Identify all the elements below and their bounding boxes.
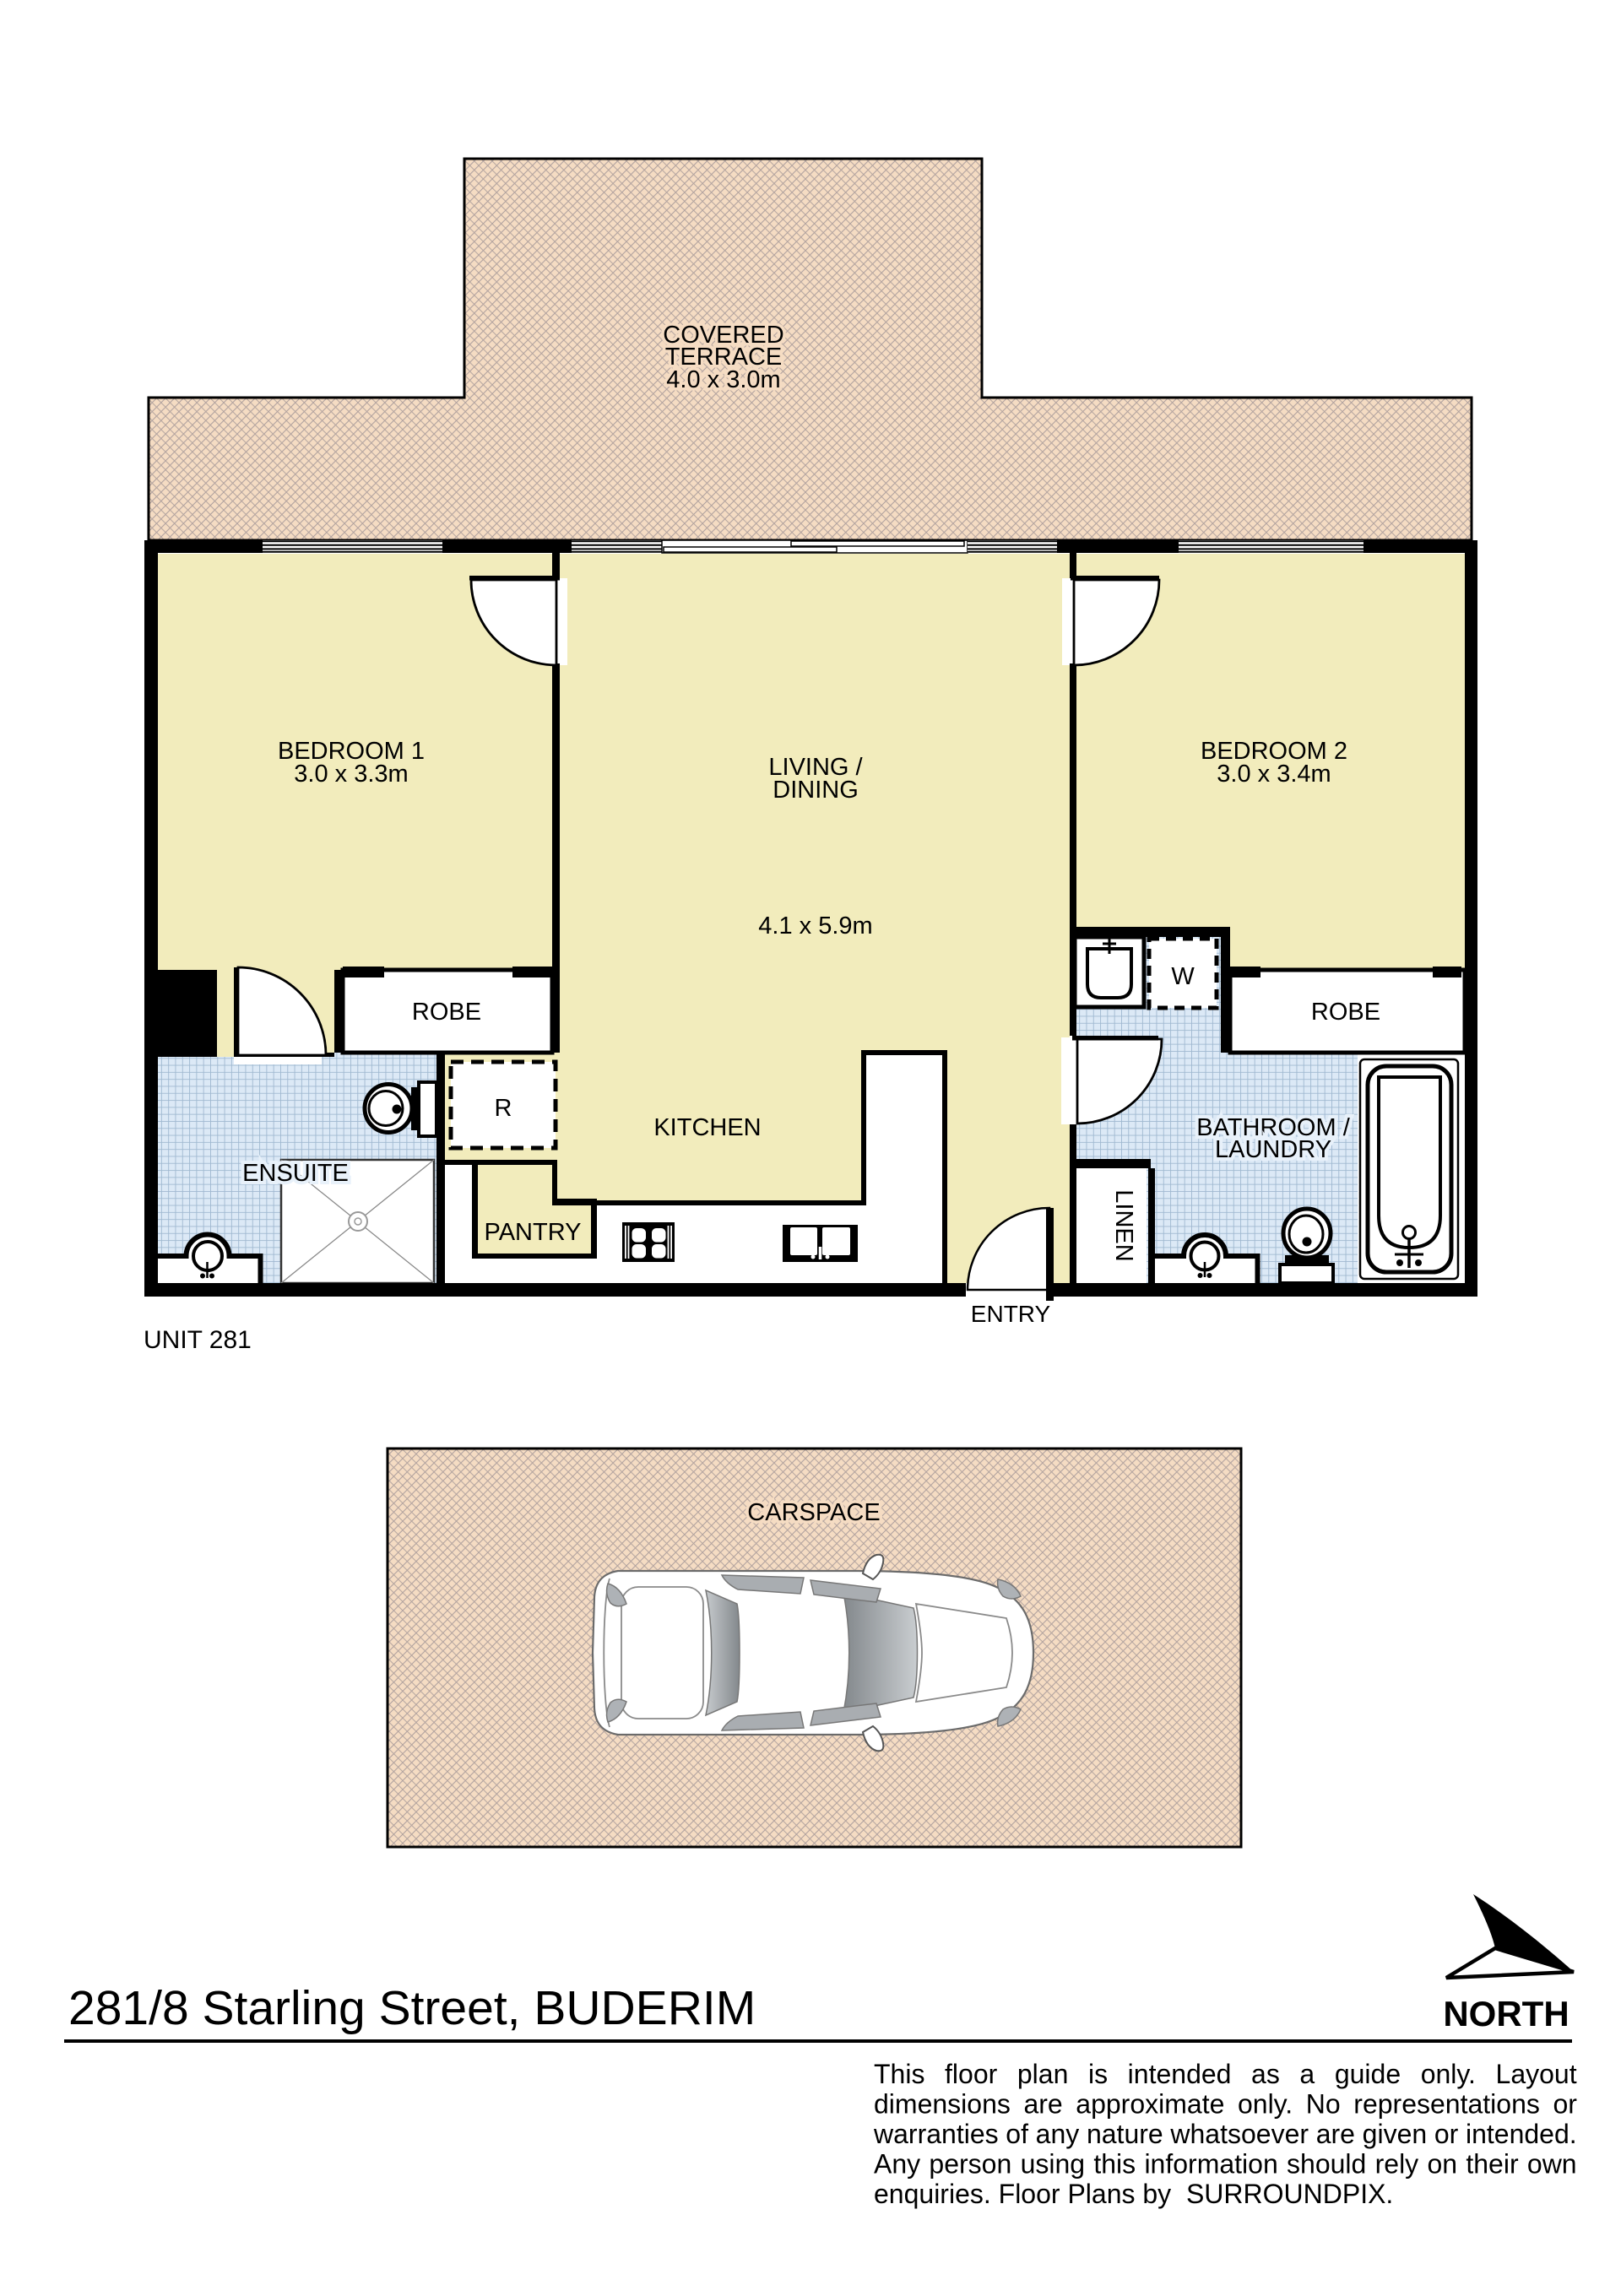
svg-text:ROBE: ROBE — [1311, 999, 1380, 1026]
svg-text:warranties of any nature whats: warranties of any nature whatsoever are … — [873, 2119, 1577, 2149]
svg-text:enquiries. Floor Plans by SUR: enquiries. Floor Plans by SURROUNDPIX. — [874, 2179, 1393, 2209]
svg-text:3.0 x 3.4m: 3.0 x 3.4m — [1217, 761, 1331, 788]
svg-text:UNIT 281: UNIT 281 — [144, 1326, 252, 1354]
svg-text:4.0 x 3.0m: 4.0 x 3.0m — [666, 366, 780, 393]
svg-text:KITCHEN: KITCHEN — [653, 1114, 761, 1141]
svg-text:ENSUITE: ENSUITE — [242, 1160, 349, 1187]
svg-text:LINEN: LINEN — [1110, 1189, 1137, 1261]
svg-text:LAUNDRY: LAUNDRY — [1215, 1136, 1331, 1163]
svg-text:DINING: DINING — [773, 777, 859, 804]
svg-text:W: W — [1171, 963, 1195, 990]
svg-text:ROBE: ROBE — [412, 999, 481, 1026]
svg-text:dimensions are approximate onl: dimensions are approximate only. No repr… — [874, 2089, 1577, 2120]
svg-text:PANTRY: PANTRY — [485, 1219, 582, 1246]
svg-text:281/8 Starling Street, BUDERIM: 281/8 Starling Street, BUDERIM — [68, 1981, 756, 2035]
svg-text:ENTRY: ENTRY — [971, 1301, 1051, 1327]
svg-text:3.0 x 3.3m: 3.0 x 3.3m — [294, 761, 408, 788]
svg-text:Any person using this informat: Any person using this information should… — [874, 2149, 1577, 2180]
svg-text:4.1 x 5.9m: 4.1 x 5.9m — [758, 912, 872, 940]
svg-text:NORTH: NORTH — [1443, 1994, 1569, 2033]
svg-text:CARSPACE: CARSPACE — [747, 1499, 880, 1526]
svg-text:R: R — [495, 1095, 512, 1122]
svg-text:This floor plan is intended as: This floor plan is intended as a guide o… — [874, 2059, 1577, 2089]
